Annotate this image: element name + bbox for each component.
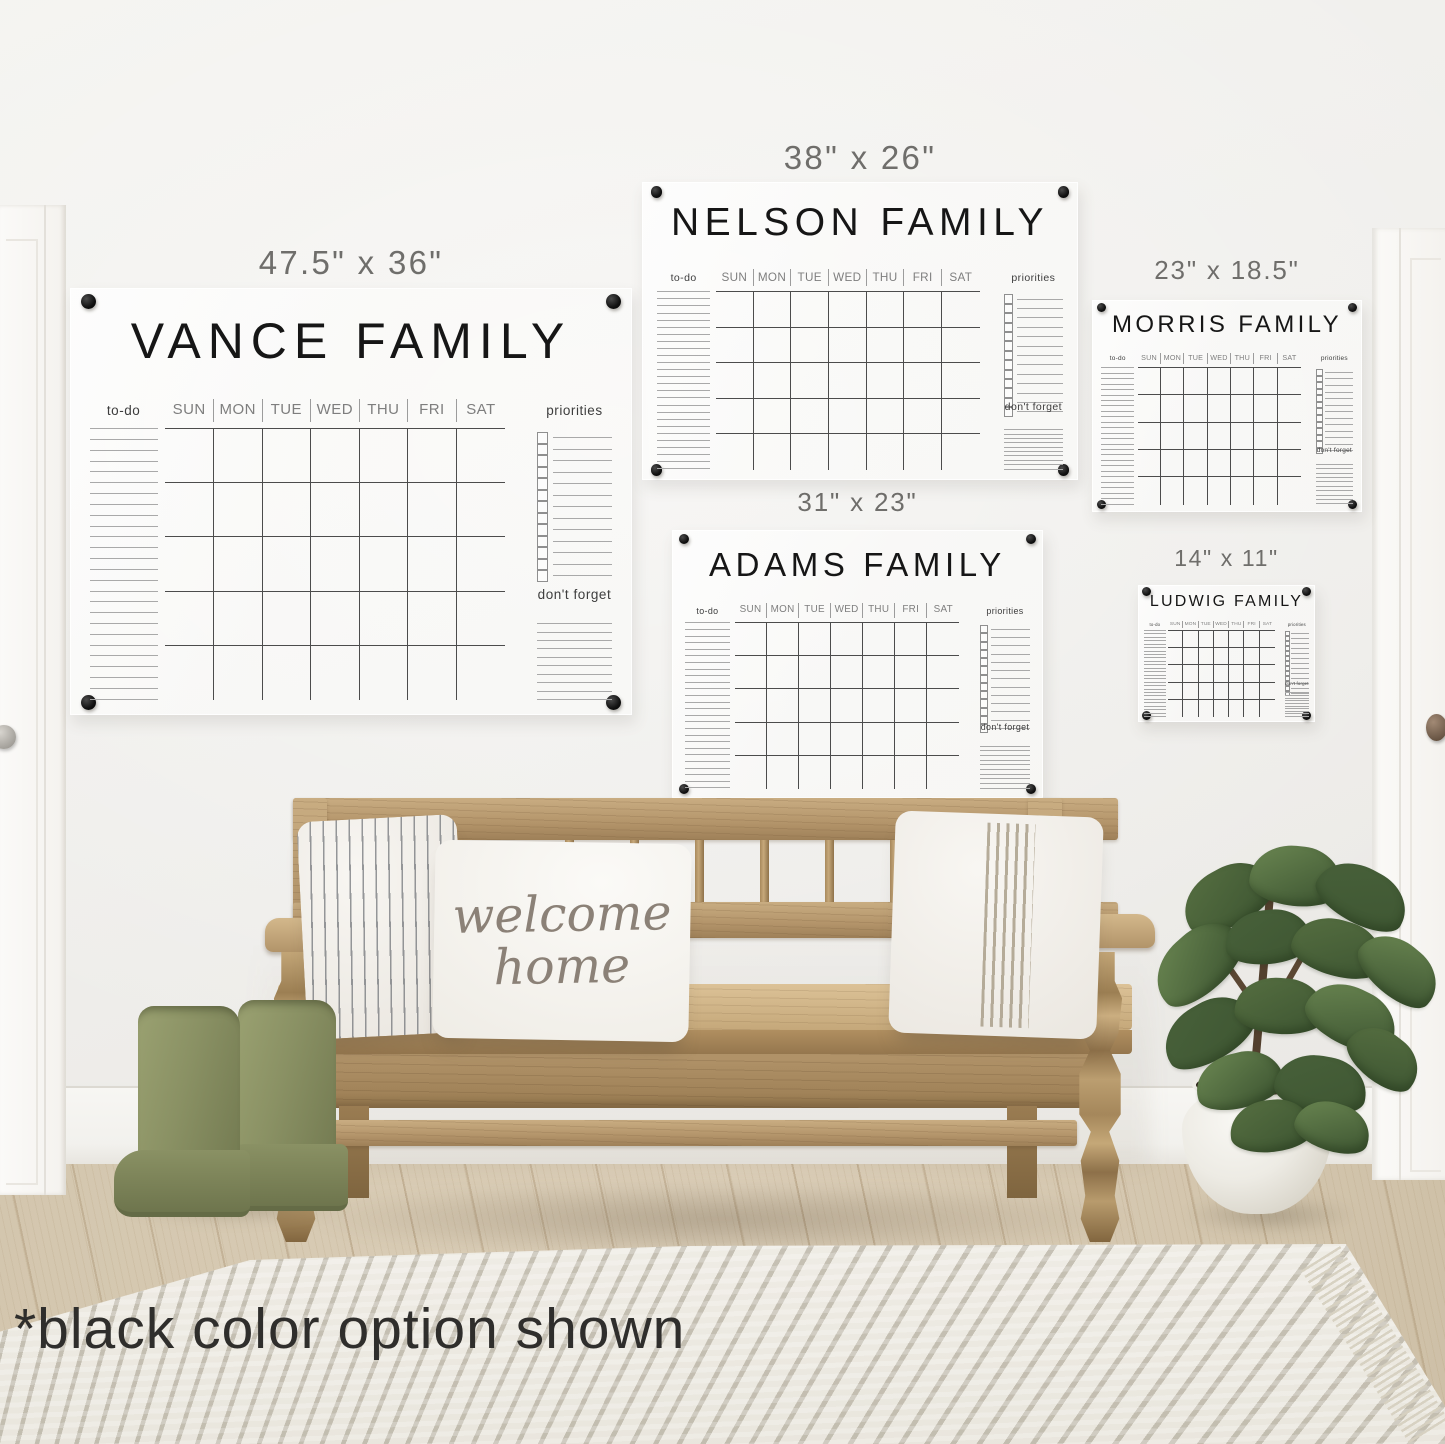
calendar-cell — [1161, 450, 1184, 477]
calendar-day-header: SUNMONTUEWEDTHUFRISAT — [165, 393, 505, 429]
ruled-line — [1144, 637, 1165, 638]
calendar-cell — [457, 646, 506, 700]
calendar-board-ludwig: LUDWIG FAMILYto-doSUNMONTUEWEDTHUFRISATp… — [1138, 585, 1315, 722]
day-label: WED — [311, 399, 360, 422]
day-label: THU — [1229, 621, 1244, 628]
dont-forget-label: don't forget — [1316, 442, 1352, 459]
ruled-line — [90, 515, 158, 516]
day-label: TUE — [263, 399, 312, 422]
calendar-cell — [867, 363, 905, 398]
calendar-column: SUNMONTUEWEDTHUFRISAT — [1138, 350, 1301, 504]
checkbox — [537, 536, 549, 548]
calendar-cell — [165, 537, 214, 591]
calendar-cell — [735, 656, 767, 689]
calendar-cell — [1208, 477, 1231, 504]
ruled-line — [980, 778, 1030, 779]
calendar-day-header: SUNMONTUEWEDTHUFRISAT — [735, 599, 959, 623]
calendar-cell — [1278, 368, 1301, 395]
ruled-line — [1325, 418, 1353, 419]
calendar-cell — [457, 429, 506, 483]
board-title-area: VANCE FAMILY — [70, 288, 632, 393]
ruled-line — [90, 601, 158, 602]
ruled-line — [553, 529, 613, 530]
board-title: VANCE FAMILY — [131, 312, 572, 370]
calendar-cell — [263, 646, 312, 700]
calendar-day-header: SUNMONTUEWEDTHUFRISAT — [1138, 350, 1301, 368]
calendar-cell — [1161, 423, 1184, 450]
calendar-cell — [214, 646, 263, 700]
ruled-line — [90, 547, 158, 548]
ruled-line — [1316, 481, 1352, 482]
ruled-line — [553, 541, 613, 542]
pillow-script-line2: home — [493, 940, 630, 994]
ruled-line — [1101, 422, 1134, 423]
dont-forget-lines — [1285, 692, 1309, 717]
board-title-area: LUDWIG FAMILY — [1138, 585, 1315, 619]
calendar-cell — [1183, 648, 1198, 665]
ruled-line — [1144, 640, 1165, 641]
ruled-line — [1101, 433, 1134, 434]
calendar-cell — [1208, 395, 1231, 422]
calendar-cell — [1184, 395, 1207, 422]
ruled-line — [685, 748, 730, 749]
ruled-line — [1316, 473, 1352, 474]
calendar-cell — [360, 592, 409, 646]
ruled-line — [1017, 327, 1063, 328]
dont-forget-label: don't forget — [1285, 678, 1309, 689]
ruled-line — [1004, 469, 1063, 470]
ruled-line — [991, 662, 1030, 663]
ruled-line — [685, 636, 730, 637]
day-label: TUE — [791, 269, 829, 287]
ruled-line — [1101, 400, 1134, 401]
ruled-line — [90, 688, 158, 689]
calendar-cell — [942, 292, 980, 327]
calendar-cell — [831, 756, 863, 789]
ruled-line — [685, 622, 730, 623]
calendar-cell — [791, 292, 829, 327]
ruled-line — [1101, 384, 1134, 385]
dont-forget-lines — [1004, 429, 1063, 469]
ruled-line — [553, 460, 613, 461]
ruled-line — [685, 721, 730, 722]
day-label: WED — [1214, 621, 1229, 628]
ruled-line — [1325, 424, 1353, 425]
ruled-line — [1004, 447, 1063, 448]
ruled-line — [991, 695, 1030, 696]
ruled-line — [553, 564, 613, 565]
ruled-line — [90, 471, 158, 472]
ruled-line — [657, 440, 710, 441]
calendar-cell — [1161, 368, 1184, 395]
calendar-cell — [1199, 648, 1214, 665]
checkbox — [1004, 351, 1013, 360]
ruled-line — [657, 313, 710, 314]
ruled-line — [1316, 468, 1352, 469]
day-label: TUE — [1199, 621, 1214, 628]
day-label: THU — [867, 269, 905, 287]
size-label-nelson: 38" x 26" — [642, 139, 1078, 177]
priority-row — [537, 536, 613, 548]
priority-row — [1004, 332, 1063, 341]
calendar-cell — [863, 656, 895, 689]
ruled-line — [1144, 709, 1165, 710]
ruled-line — [1291, 668, 1308, 669]
door-left-frame — [44, 205, 46, 1195]
calendar-cell — [942, 434, 980, 469]
priority-row — [537, 559, 613, 571]
pillow-script-line1: welcome — [453, 887, 673, 943]
ruled-line — [685, 675, 730, 676]
ruled-line — [90, 450, 158, 451]
board-title-area: ADAMS FAMILY — [672, 530, 1043, 599]
ruled-line — [1144, 654, 1165, 655]
calendar-cell — [214, 429, 263, 483]
calendar-cell — [927, 623, 959, 656]
priority-row — [537, 444, 613, 456]
ruled-line — [1144, 716, 1165, 717]
ruled-line — [1291, 653, 1308, 654]
ruled-line — [1325, 437, 1353, 438]
checkbox — [1004, 360, 1013, 369]
calendar-cell — [1208, 368, 1231, 395]
calendar-grid — [1168, 631, 1275, 717]
calendar-cell — [716, 434, 754, 469]
day-label: FRI — [895, 603, 927, 618]
ruled-line — [980, 746, 1030, 747]
priority-row — [1004, 323, 1063, 332]
calendar-cell — [1138, 477, 1161, 504]
day-label: SAT — [942, 269, 980, 287]
ruled-line — [657, 334, 710, 335]
ruled-line — [980, 760, 1030, 761]
ruled-line — [1004, 464, 1063, 465]
calendar-cell — [1244, 648, 1259, 665]
ruled-line — [991, 678, 1030, 679]
ruled-line — [657, 362, 710, 363]
size-label-ludwig: 14" x 11" — [1138, 545, 1315, 572]
checkbox — [537, 478, 549, 490]
ruled-line — [685, 682, 730, 683]
ruled-line — [657, 412, 710, 413]
board-title-area: NELSON FAMILY — [642, 182, 1078, 264]
ruled-line — [657, 454, 710, 455]
ruled-line — [1291, 648, 1308, 649]
ruled-line — [685, 715, 730, 716]
ruled-line — [657, 433, 710, 434]
checkbox — [1004, 304, 1013, 313]
calendar-board-morris: MORRIS FAMILYto-doSUNMONTUEWEDTHUFRISATp… — [1092, 300, 1362, 512]
ruled-line — [1144, 713, 1165, 714]
side-column: prioritiesdon't forget — [1285, 619, 1309, 718]
ruled-line — [1316, 503, 1352, 504]
day-label: SAT — [1278, 353, 1301, 364]
ruled-line — [553, 495, 613, 496]
ruled-line — [1101, 476, 1134, 477]
ruled-line — [90, 612, 158, 613]
calendar-cell — [867, 434, 905, 469]
calendar-cell — [1260, 648, 1275, 665]
bench-spindle — [760, 840, 769, 906]
ruled-line — [90, 569, 158, 570]
ruled-line — [657, 291, 710, 292]
calendar-cell — [927, 656, 959, 689]
ruled-line — [685, 688, 730, 689]
bench-spindle — [825, 840, 834, 906]
ruled-line — [1101, 378, 1134, 379]
day-label: FRI — [1244, 621, 1259, 628]
ruled-line — [980, 769, 1030, 770]
calendar-column: SUNMONTUEWEDTHUFRISAT — [735, 599, 959, 788]
calendar-cell — [1161, 477, 1184, 504]
ruled-line — [685, 741, 730, 742]
calendar-cell — [904, 292, 942, 327]
calendar-cell — [165, 592, 214, 646]
calendar-cell — [767, 689, 799, 722]
ruled-line — [657, 298, 710, 299]
priorities-list — [1285, 630, 1309, 673]
ruled-line — [1325, 385, 1353, 386]
priority-row — [1004, 370, 1063, 379]
ruled-line — [90, 439, 158, 440]
ruled-line — [1325, 392, 1353, 393]
ruled-line — [1101, 389, 1134, 390]
board-body: to-doSUNMONTUEWEDTHUFRISATprioritiesdon'… — [657, 264, 1063, 470]
ruled-line — [537, 699, 613, 700]
ruled-line — [553, 575, 613, 576]
door-left-panel — [6, 239, 38, 1185]
ruled-line — [1101, 493, 1134, 494]
ruled-line — [90, 493, 158, 494]
ruled-line — [553, 449, 613, 450]
calendar-cell — [904, 399, 942, 434]
ruled-line — [90, 526, 158, 527]
ruled-line — [1285, 706, 1309, 707]
calendar-cell — [1199, 631, 1214, 648]
calendar-cell — [895, 689, 927, 722]
ruled-line — [1291, 673, 1308, 674]
size-label-adams: 31" x 23" — [672, 487, 1043, 518]
ruled-line — [1004, 429, 1063, 430]
ruled-line — [685, 787, 730, 788]
calendar-cell — [942, 363, 980, 398]
ruled-line — [685, 761, 730, 762]
calendar-cell — [457, 483, 506, 537]
ruled-line — [1101, 438, 1134, 439]
checkbox — [1004, 370, 1013, 379]
calendar-column: SUNMONTUEWEDTHUFRISAT — [1168, 619, 1275, 718]
calendar-cell — [791, 434, 829, 469]
ruled-line — [1017, 299, 1063, 300]
ruled-line — [1101, 373, 1134, 374]
day-label: SUN — [165, 399, 214, 422]
todo-lines — [685, 622, 730, 788]
calendar-cell — [863, 689, 895, 722]
ruled-line — [991, 637, 1030, 638]
dont-forget-label: don't forget — [980, 715, 1030, 738]
calendar-cell — [863, 623, 895, 656]
calendar-cell — [829, 363, 867, 398]
side-column: prioritiesdon't forget — [1316, 350, 1352, 504]
priority-row — [1004, 341, 1063, 350]
ruled-line — [685, 728, 730, 729]
ruled-line — [1144, 651, 1165, 652]
todo-column: to-do — [1144, 619, 1165, 718]
ruled-line — [90, 634, 158, 635]
ruled-line — [553, 483, 613, 484]
ruled-line — [657, 369, 710, 370]
ruled-line — [1285, 692, 1309, 693]
calendar-cell — [1260, 665, 1275, 682]
calendar-grid — [165, 429, 505, 700]
ruled-line — [553, 506, 613, 507]
day-label: SUN — [1168, 621, 1183, 628]
ruled-line — [1017, 346, 1063, 347]
dont-forget-lines — [980, 746, 1030, 789]
ruled-line — [537, 674, 613, 675]
ruled-line — [980, 755, 1030, 756]
ruled-line — [1316, 486, 1352, 487]
ruled-line — [1101, 454, 1134, 455]
calendar-cell — [1278, 395, 1301, 422]
checkbox — [980, 666, 988, 674]
calendar-cell — [1214, 631, 1229, 648]
priority-row — [980, 625, 1030, 633]
calendar-cell — [904, 363, 942, 398]
ruled-line — [685, 754, 730, 755]
calendar-cell — [1278, 477, 1301, 504]
checkbox — [1004, 379, 1013, 388]
calendar-cell — [1161, 395, 1184, 422]
ruled-line — [537, 623, 613, 624]
calendar-cell — [1244, 631, 1259, 648]
checkbox — [980, 691, 988, 699]
size-label-morris: 23" x 18.5" — [1092, 255, 1362, 286]
calendar-grid — [716, 292, 980, 469]
ruled-line — [1325, 378, 1353, 379]
calendar-cell — [791, 328, 829, 363]
ruled-line — [1285, 698, 1309, 699]
calendar-column: SUNMONTUEWEDTHUFRISAT — [716, 264, 980, 470]
ruled-line — [657, 327, 710, 328]
dont-forget-label: don't forget — [537, 577, 613, 612]
calendar-cell — [754, 363, 792, 398]
day-label: THU — [1231, 353, 1254, 364]
priority-row — [980, 699, 1030, 707]
ruled-line — [657, 348, 710, 349]
ruled-line — [991, 670, 1030, 671]
calendar-cell — [829, 328, 867, 363]
ruled-line — [1291, 643, 1308, 644]
checkbox — [1004, 323, 1013, 332]
todo-label: to-do — [1144, 619, 1165, 630]
calendar-cell — [1231, 395, 1254, 422]
rain-boot-left-foot — [114, 1150, 250, 1217]
day-label: SUN — [1138, 353, 1161, 364]
calendar-cell — [1214, 700, 1229, 717]
size-label-vance: 47.5" x 36" — [70, 244, 632, 282]
priority-row — [537, 478, 613, 490]
calendar-cell — [735, 689, 767, 722]
ruled-line — [1144, 671, 1165, 672]
ruled-line — [685, 649, 730, 650]
checkbox — [537, 501, 549, 513]
calendar-cell — [867, 328, 905, 363]
ruled-line — [1144, 661, 1165, 662]
ruled-line — [1004, 442, 1063, 443]
calendar-cell — [735, 723, 767, 756]
calendar-cell — [214, 592, 263, 646]
calendar-cell — [1168, 683, 1183, 700]
ruled-line — [1101, 498, 1134, 499]
ruled-line — [1144, 675, 1165, 676]
ruled-line — [1291, 633, 1308, 634]
day-label: SUN — [716, 269, 754, 287]
ruled-line — [553, 552, 613, 553]
ruled-line — [1144, 657, 1165, 658]
calendar-cell — [895, 656, 927, 689]
ruled-line — [1101, 367, 1134, 368]
calendar-cell — [799, 756, 831, 789]
checkbox — [537, 559, 549, 571]
calendar-cell — [716, 363, 754, 398]
calendar-cell — [1214, 683, 1229, 700]
checkbox — [537, 524, 549, 536]
ruled-line — [1101, 471, 1134, 472]
calendar-cell — [1254, 423, 1277, 450]
calendar-cell — [457, 537, 506, 591]
calendar-cell — [165, 429, 214, 483]
calendar-cell — [214, 537, 263, 591]
priority-row — [980, 633, 1030, 641]
priorities-list — [1004, 291, 1063, 380]
ruled-line — [1316, 499, 1352, 500]
day-label: MON — [1161, 353, 1184, 364]
calendar-cell — [1138, 395, 1161, 422]
ruled-line — [90, 645, 158, 646]
calendar-cell — [867, 292, 905, 327]
bench-stretcher — [319, 1120, 1077, 1146]
calendar-cell — [1229, 683, 1244, 700]
board-title: MORRIS FAMILY — [1112, 311, 1342, 339]
ruled-line — [1004, 451, 1063, 452]
dont-forget-lines — [537, 623, 613, 700]
ruled-line — [657, 461, 710, 462]
priority-row — [537, 524, 613, 536]
calendar-cell — [754, 399, 792, 434]
calendar-cell — [1184, 423, 1207, 450]
priority-row — [980, 642, 1030, 650]
calendar-cell — [895, 723, 927, 756]
priority-row — [980, 658, 1030, 666]
ruled-line — [1144, 678, 1165, 679]
day-label: THU — [360, 399, 409, 422]
board-title-area: MORRIS FAMILY — [1092, 300, 1362, 350]
checkbox — [1004, 332, 1013, 341]
calendar-cell — [735, 623, 767, 656]
calendar-cell — [829, 292, 867, 327]
priorities-list — [1316, 367, 1352, 434]
calendar-cell — [1229, 648, 1244, 665]
calendar-cell — [1184, 368, 1207, 395]
priority-row — [537, 501, 613, 513]
ruled-line — [685, 781, 730, 782]
ruled-line — [1285, 716, 1309, 717]
calendar-grid — [1138, 368, 1301, 504]
calendar-cell — [927, 756, 959, 789]
ruled-line — [685, 702, 730, 703]
priority-row — [1004, 351, 1063, 360]
